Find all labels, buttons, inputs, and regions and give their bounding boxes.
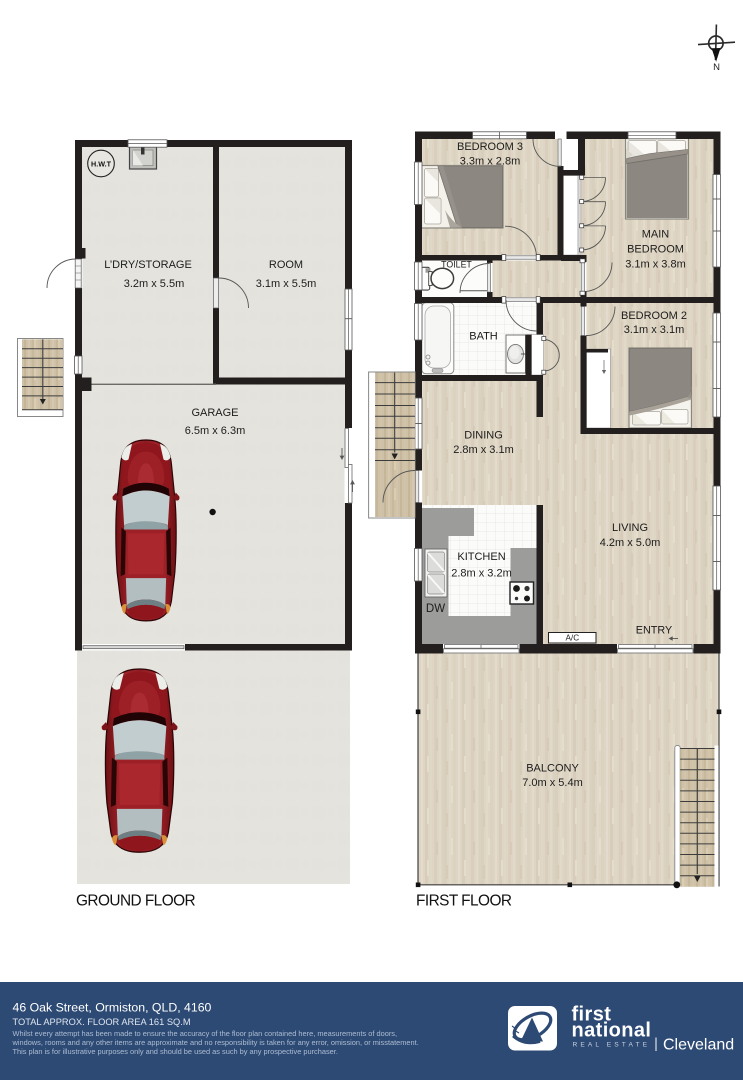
svg-text:KITCHEN: KITCHEN (457, 551, 505, 563)
svg-text:3.1m x 3.8m: 3.1m x 3.8m (625, 259, 686, 271)
svg-text:Cleveland: Cleveland (663, 1037, 734, 1054)
svg-text:3.2m x 5.5m: 3.2m x 5.5m (124, 278, 185, 290)
svg-text:46 Oak Street, Ormiston, QLD,: 46 Oak Street, Ormiston, QLD, 4160 (13, 1001, 212, 1015)
svg-text:Whilst every attempt has been: Whilst every attempt has been made to en… (13, 1029, 398, 1038)
svg-text:BEDROOM 3: BEDROOM 3 (457, 141, 523, 153)
svg-text:4.2m x 5.0m: 4.2m x 5.0m (600, 537, 661, 549)
svg-text:BEDROOM: BEDROOM (627, 244, 684, 256)
svg-text:L’DRY/STORAGE: L’DRY/STORAGE (104, 259, 192, 271)
svg-text:BALCONY: BALCONY (526, 763, 579, 775)
svg-text:national: national (572, 1020, 652, 1042)
svg-text:H.W.T: H.W.T (91, 159, 112, 168)
svg-text:DW: DW (426, 603, 445, 615)
svg-text:6.5m x 6.3m: 6.5m x 6.3m (185, 425, 246, 437)
svg-text:N: N (713, 62, 720, 73)
svg-text:MAIN: MAIN (642, 229, 670, 241)
svg-text:REAL ESTATE: REAL ESTATE (573, 1042, 651, 1049)
svg-text:7.0m x 5.4m: 7.0m x 5.4m (522, 777, 583, 789)
svg-text:DINING: DINING (464, 430, 503, 442)
svg-text:FIRST FLOOR: FIRST FLOOR (416, 893, 512, 910)
svg-text:BATH: BATH (469, 331, 498, 343)
svg-text:3.3m x 2.8m: 3.3m x 2.8m (460, 156, 521, 168)
svg-text:3.1m x 5.5m: 3.1m x 5.5m (256, 278, 317, 290)
svg-text:This plan is for illustrative: This plan is for illustrative purposes o… (13, 1047, 338, 1056)
svg-text:2.8m x 3.2m: 2.8m x 3.2m (451, 568, 512, 580)
svg-text:2.8m x 3.1m: 2.8m x 3.1m (453, 444, 514, 456)
svg-text:TOTAL APPROX. FLOOR AREA 161 S: TOTAL APPROX. FLOOR AREA 161 SQ.M (13, 1017, 191, 1027)
svg-text:LIVING: LIVING (612, 522, 648, 534)
svg-text:3.1m x 3.1m: 3.1m x 3.1m (624, 324, 685, 336)
svg-text:ENTRY: ENTRY (636, 625, 672, 637)
svg-text:windows, rooms and any other i: windows, rooms and any other items are a… (12, 1038, 419, 1047)
svg-text:GROUND FLOOR: GROUND FLOOR (76, 893, 196, 910)
svg-text:BEDROOM 2: BEDROOM 2 (621, 310, 687, 322)
svg-text:A/C: A/C (565, 634, 579, 643)
svg-text:GARAGE: GARAGE (191, 407, 238, 419)
svg-text:ROOM: ROOM (269, 259, 303, 271)
svg-text:TOILET: TOILET (441, 260, 472, 270)
